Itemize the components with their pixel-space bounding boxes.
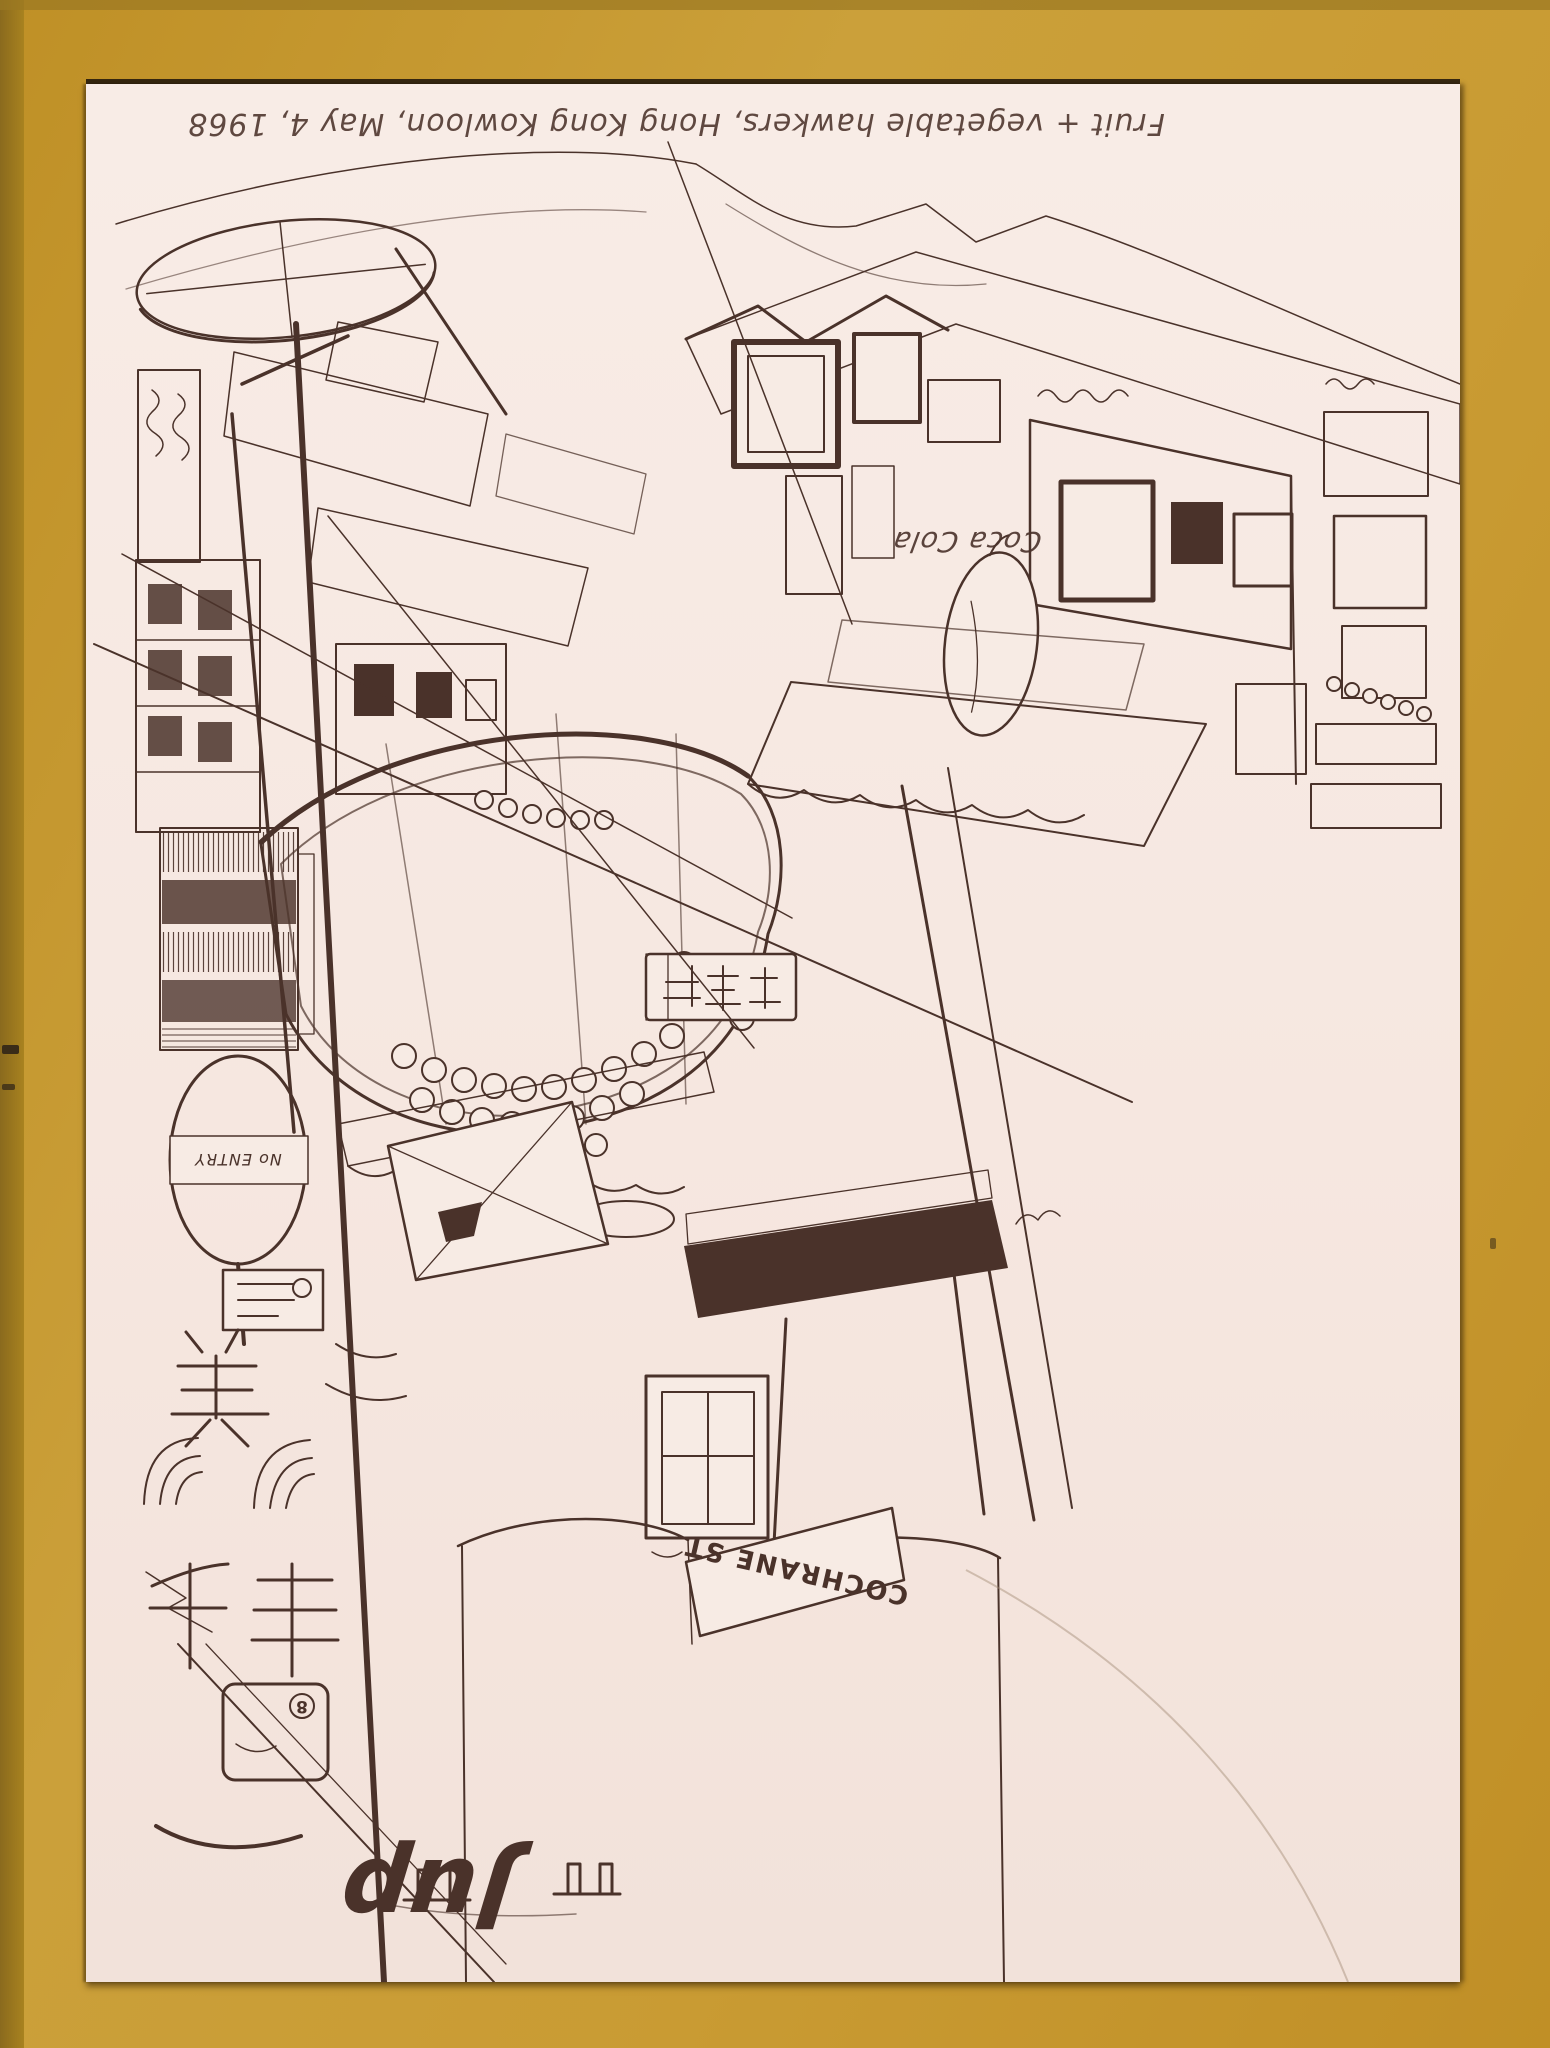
- mount-left-shadow: [0, 0, 24, 2048]
- tenement-left: [136, 560, 260, 832]
- banded-sign-tower: [160, 828, 314, 1050]
- circled-number: 8: [296, 1696, 308, 1716]
- scanned-postcard: Fruit + vegetable hawkers, Hong Kong Kow…: [0, 0, 1550, 2048]
- window-frame-large: [734, 342, 838, 466]
- mount-nick-2: [2, 1084, 15, 1090]
- boxed-cjk-sign: [223, 1270, 323, 1330]
- stall-umbrella: [326, 1052, 714, 1400]
- price-tag: 8: [223, 1684, 328, 1780]
- cjk-char-qian: [150, 1564, 228, 1668]
- corrugated-roofs: [224, 352, 646, 646]
- sketch-paper: Fruit + vegetable hawkers, Hong Kong Kow…: [86, 84, 1460, 1982]
- mount-nick-1: [2, 1045, 19, 1054]
- cjk-char-feng: [252, 1564, 338, 1676]
- window-frame-small: [854, 334, 920, 422]
- awning-fan-arcs: [144, 1438, 314, 1508]
- ink-sketch: Fruit + vegetable hawkers, Hong Kong Kow…: [86, 84, 1460, 1982]
- handwritten-caption: Fruit + vegetable hawkers, Hong Kong Kow…: [187, 106, 1165, 141]
- caption-text: Fruit + vegetable hawkers, Hong Kong Kow…: [187, 106, 1165, 141]
- cjk-shop-board: [646, 954, 796, 1020]
- monogram-text: Jup: [336, 1837, 534, 1947]
- umbrella-strut: [396, 249, 506, 414]
- cjk-char-mei: [172, 1330, 268, 1446]
- mount-nick-3: [1490, 1238, 1496, 1249]
- mount-top-shadow: [0, 0, 1550, 10]
- no-entry-text: No ENTRY: [194, 1150, 282, 1169]
- tenement-midleft: [336, 644, 506, 794]
- right-buildings: [686, 252, 1460, 828]
- vertical-signboard-left: [138, 370, 200, 562]
- sign-scribble: [1038, 390, 1128, 402]
- pencil-curve: [966, 1570, 1348, 1982]
- coca-cola-script: Coca Cola: [890, 525, 1044, 558]
- hatched-banner: [326, 322, 438, 402]
- artist-monogram: Jup: [156, 1826, 534, 1947]
- dark-canopy: [261, 714, 781, 1134]
